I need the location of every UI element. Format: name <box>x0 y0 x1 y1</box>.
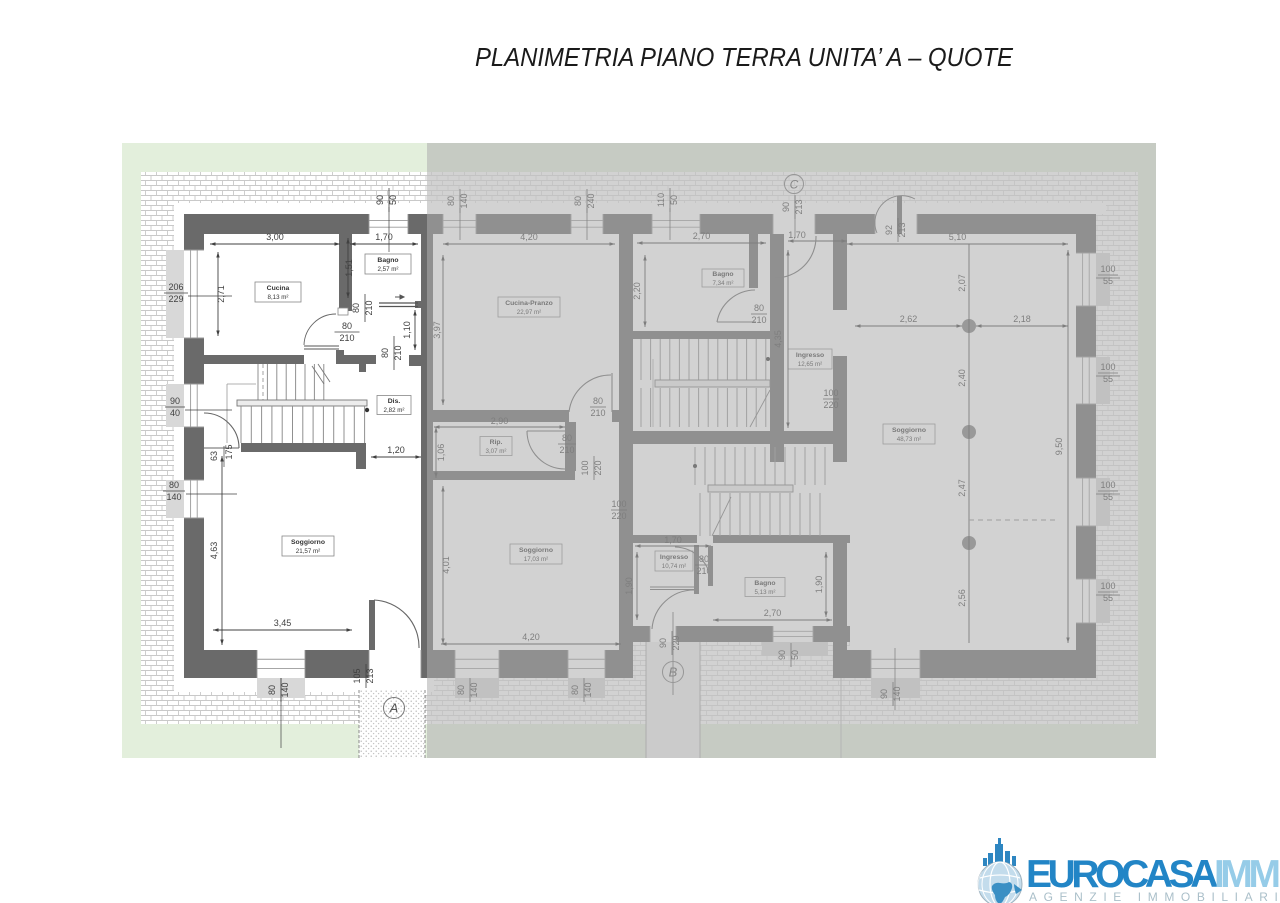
svg-text:229: 229 <box>168 294 183 304</box>
svg-text:2,71: 2,71 <box>216 285 226 303</box>
svg-text:2,57 m²: 2,57 m² <box>378 266 399 273</box>
svg-text:Soggiorno: Soggiorno <box>291 539 325 546</box>
svg-text:63: 63 <box>209 451 219 461</box>
svg-text:140: 140 <box>166 492 181 502</box>
svg-text:206: 206 <box>168 282 183 292</box>
svg-text:140: 140 <box>280 682 290 697</box>
svg-text:1,70: 1,70 <box>375 232 393 242</box>
svg-text:80: 80 <box>267 685 277 695</box>
svg-text:210: 210 <box>339 333 354 343</box>
svg-text:3,00: 3,00 <box>266 232 284 242</box>
svg-text:175: 175 <box>224 444 234 459</box>
svg-text:1,20: 1,20 <box>387 445 405 455</box>
svg-text:90: 90 <box>170 396 180 406</box>
svg-text:80: 80 <box>351 303 361 313</box>
svg-text:1,10: 1,10 <box>402 321 412 339</box>
svg-text:4,63: 4,63 <box>209 542 219 560</box>
svg-text:80: 80 <box>342 321 352 331</box>
svg-text:80: 80 <box>169 480 179 490</box>
svg-text:3,45: 3,45 <box>274 618 292 628</box>
svg-text:AGENZIE IMMOBILIARI: AGENZIE IMMOBILIARI <box>1029 890 1280 903</box>
svg-text:40: 40 <box>170 408 180 418</box>
svg-text:105: 105 <box>352 668 362 683</box>
svg-text:Bagno: Bagno <box>377 257 398 264</box>
svg-text:210: 210 <box>364 300 374 315</box>
svg-text:80: 80 <box>380 348 390 358</box>
svg-text:Dis.: Dis. <box>388 398 401 405</box>
svg-text:2,82 m²: 2,82 m² <box>384 407 405 414</box>
svg-text:Cucina: Cucina <box>267 285 290 292</box>
svg-text:90: 90 <box>375 195 385 205</box>
svg-text:A: A <box>389 701 399 716</box>
svg-text:PLANIMETRIA PIANO TERRA UNI: PLANIMETRIA PIANO TERRA UNITA’ A – QUOTE <box>475 42 1014 72</box>
svg-text:1,51: 1,51 <box>344 259 354 277</box>
svg-text:21,57 m²: 21,57 m² <box>296 548 320 555</box>
svg-text:50: 50 <box>388 195 398 205</box>
svg-text:213: 213 <box>365 668 375 683</box>
svg-text:210: 210 <box>393 345 403 360</box>
svg-text:8,13 m²: 8,13 m² <box>268 294 289 301</box>
